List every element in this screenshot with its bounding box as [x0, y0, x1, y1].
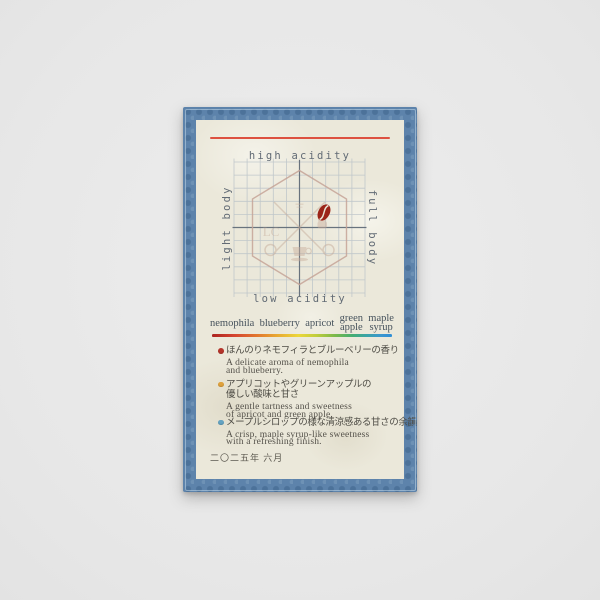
note-1-jp: ほんのりネモフィラとブルーベリーの香り: [226, 346, 398, 357]
note-3-en: A crisp, maple syrup-like sweetness with…: [226, 432, 398, 448]
label-high-acidity: high acidity: [196, 150, 404, 162]
card-paper: LC: [196, 120, 404, 479]
label-full-body: full body: [366, 172, 378, 284]
flavor-gradient-bar: [212, 334, 392, 337]
coffee-bean-icon: [315, 202, 333, 223]
tasting-card: LC: [183, 107, 417, 492]
emblem-cup: [293, 247, 307, 256]
note-1-en: A delicate aroma of nemophila and bluebe…: [226, 360, 398, 376]
tasting-note-3: メープルシロップの様な清涼感ある甘さの余韻 A crisp, maple syr…: [218, 418, 398, 448]
flavor-name-row: nemophila blueberry apricot green apple …: [210, 314, 394, 332]
flavor-maple-syrup: maple syrup: [368, 314, 394, 332]
flavor-apricot: apricot: [305, 318, 334, 329]
note-dot-red: [218, 348, 224, 354]
tasting-note-1: ほんのりネモフィラとブルーベリーの香り A delicate aroma of …: [218, 346, 398, 376]
flavor-nemophila: nemophila: [210, 318, 254, 329]
note-3-jp: メープルシロップの様な清涼感ある甘さの余韻: [226, 418, 398, 429]
photo-background: LC: [0, 0, 600, 600]
note-2-jp: アプリコットやグリーンアップルの 優しい酸味と甘さ: [226, 380, 398, 401]
flavor-green-apple: green apple: [340, 314, 363, 332]
label-light-body: light body: [221, 172, 233, 284]
flavor-blueberry: blueberry: [260, 318, 300, 329]
label-low-acidity: low acidity: [196, 293, 404, 305]
issue-date: 二〇二五年 六月: [210, 453, 283, 463]
tasting-note-2: アプリコットやグリーンアップルの 優しい酸味と甘さ A gentle tartn…: [218, 380, 398, 420]
emblem-initials: LC: [263, 224, 280, 239]
